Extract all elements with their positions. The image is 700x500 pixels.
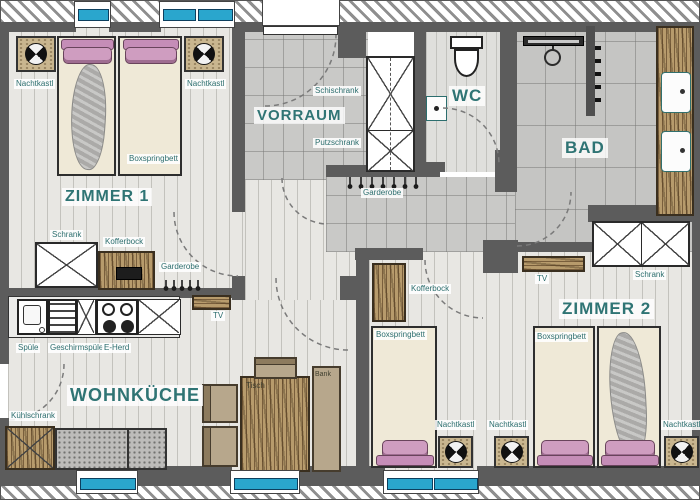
window-glass — [78, 9, 109, 21]
fridge-cabinet — [5, 426, 55, 470]
faucet — [680, 148, 685, 153]
label-nachtkastl: Nachtkastl — [661, 420, 700, 430]
wall-zimmer1-east — [232, 22, 245, 212]
room-label-wohnkueche: WOHNKÜCHE — [67, 385, 203, 406]
nightstand — [664, 436, 699, 468]
wall-zimmer2-block — [483, 240, 518, 273]
cushion-divider — [127, 430, 129, 468]
towel-hook — [595, 59, 601, 63]
label-spuele: Spüle — [16, 343, 40, 353]
room-label-zimmer1: ZIMMER 1 — [62, 188, 152, 206]
sink-unit — [17, 299, 48, 335]
shower-head — [544, 49, 561, 66]
wall-wc-west — [414, 22, 426, 170]
room-label-bad: BAD — [562, 138, 608, 158]
decor-symbol — [501, 441, 523, 463]
chair — [202, 426, 238, 467]
pillow — [125, 47, 177, 64]
label-nachtkastl: Nachtkastl — [487, 420, 528, 430]
bench — [312, 366, 341, 472]
sink-basin — [23, 305, 41, 325]
x-pattern — [78, 300, 94, 333]
label-tisch: Tisch — [244, 381, 267, 391]
toilet-tank — [450, 36, 483, 49]
wall-shower-partition — [586, 26, 595, 116]
luggage-rack — [372, 263, 406, 322]
faucet — [39, 327, 45, 333]
label-nachtkastl: Nachtkastl — [435, 420, 476, 430]
label-geschirrspueler: Geschirmspüler — [48, 343, 108, 353]
floor-plan: Nachtkastl Nachtkastl Boxspringbett ZIMM… — [0, 0, 700, 500]
kitchen-counter — [8, 296, 180, 338]
window-glass — [387, 478, 433, 490]
label-bank: Bank — [313, 370, 333, 380]
bench-sofa — [55, 428, 167, 470]
bed — [57, 36, 116, 176]
label-kofferbock: Kofferbock — [103, 237, 145, 247]
wall-segment — [336, 22, 700, 32]
window-glass — [80, 478, 136, 490]
dishwasher — [48, 299, 77, 335]
pillow — [63, 47, 112, 64]
label-schischrank: Schischrank — [313, 86, 361, 96]
window-glass — [198, 9, 233, 21]
room-label-zimmer2: ZIMMER 2 — [559, 299, 654, 319]
wall-segment — [109, 22, 161, 32]
bed — [597, 326, 661, 468]
wall-bad-south — [517, 242, 592, 252]
label-nachtkastl: Nachtkastl — [185, 79, 226, 89]
x-pattern — [139, 300, 179, 333]
towel-hook — [595, 85, 601, 89]
chair-backrest — [204, 386, 211, 421]
decor-symbol — [25, 43, 47, 65]
burner — [102, 303, 115, 316]
faucet — [680, 89, 685, 94]
bed — [371, 326, 437, 468]
faucet — [434, 106, 439, 111]
label-kofferbock: Kofferbock — [409, 284, 451, 294]
label-garderobe: Garderobe — [159, 262, 201, 272]
tv-set — [116, 267, 142, 280]
chair-backrest — [204, 428, 211, 465]
blanket — [67, 63, 109, 171]
wall-segment — [0, 22, 76, 32]
nightstand — [184, 36, 224, 72]
wc-washbasin — [426, 96, 447, 121]
cabinet-centerline — [390, 58, 391, 170]
entrance-door-leaf — [263, 26, 338, 35]
label-eherd: E-Herd — [102, 343, 131, 353]
bed — [533, 326, 595, 468]
towel-hook — [595, 46, 601, 50]
burner — [120, 303, 133, 316]
decor-symbol — [671, 441, 693, 463]
wall-zimmer2-west — [356, 248, 369, 470]
label-boxspringbett: Boxspringbett — [127, 154, 180, 164]
x-pattern — [641, 223, 689, 265]
shower-rail-inner — [528, 40, 579, 43]
burner — [121, 320, 134, 333]
chair — [254, 357, 297, 379]
vanity-counter — [656, 26, 694, 216]
label-kuehlschrank: Kühlschrank — [9, 411, 57, 421]
label-nachtkastl: Nachtkastl — [14, 79, 55, 89]
label-schrank: Schrank — [50, 230, 83, 240]
headboard — [537, 455, 593, 466]
wall-jut — [340, 276, 357, 300]
label-tv: TV — [535, 274, 549, 284]
towel-hook — [595, 98, 601, 102]
stove — [96, 299, 138, 335]
wall-segment — [477, 466, 700, 486]
label-schrank: Schrank — [633, 270, 666, 280]
x-pattern — [37, 244, 96, 286]
nightstand — [494, 436, 529, 468]
nightstand — [438, 436, 473, 468]
window-glass — [234, 478, 298, 490]
room-label-wc: WC — [449, 86, 485, 106]
wall-vorraum-corner — [338, 22, 366, 58]
tv-board — [192, 295, 231, 310]
entrance-opening — [262, 0, 340, 26]
decor-symbol — [193, 43, 215, 65]
nightstand — [16, 36, 56, 72]
wardrobe — [592, 221, 690, 267]
washbasin — [661, 72, 691, 113]
chair — [202, 384, 238, 423]
wall-zimmer1-east — [232, 276, 245, 300]
room-label-vorraum: VORRAUM — [254, 107, 345, 124]
cabinet — [77, 299, 96, 335]
window-glass — [163, 9, 196, 21]
shower-rail — [523, 36, 584, 46]
wall-hall-block — [495, 150, 517, 192]
washbasin — [661, 131, 691, 172]
headboard — [601, 455, 659, 466]
decor-symbol — [445, 441, 467, 463]
label-putzschrank: Putzschrank — [313, 138, 361, 148]
label-tv: TV — [211, 311, 225, 321]
hall-cabinet — [366, 56, 415, 172]
wardrobe — [35, 242, 98, 288]
x-pattern — [594, 223, 641, 265]
label-garderobe: Garderobe — [361, 188, 403, 198]
towel-hook — [595, 72, 601, 76]
headboard — [376, 455, 434, 466]
tv-board — [522, 256, 585, 272]
label-boxspringbett: Boxspringbett — [535, 332, 588, 342]
burner — [103, 320, 116, 333]
x-pattern — [7, 428, 53, 468]
luggage-rack — [98, 251, 155, 290]
cabinet — [138, 299, 181, 335]
label-boxspringbett: Boxspringbett — [374, 330, 427, 340]
chair-backrest — [256, 359, 295, 365]
window-glass — [434, 478, 478, 490]
